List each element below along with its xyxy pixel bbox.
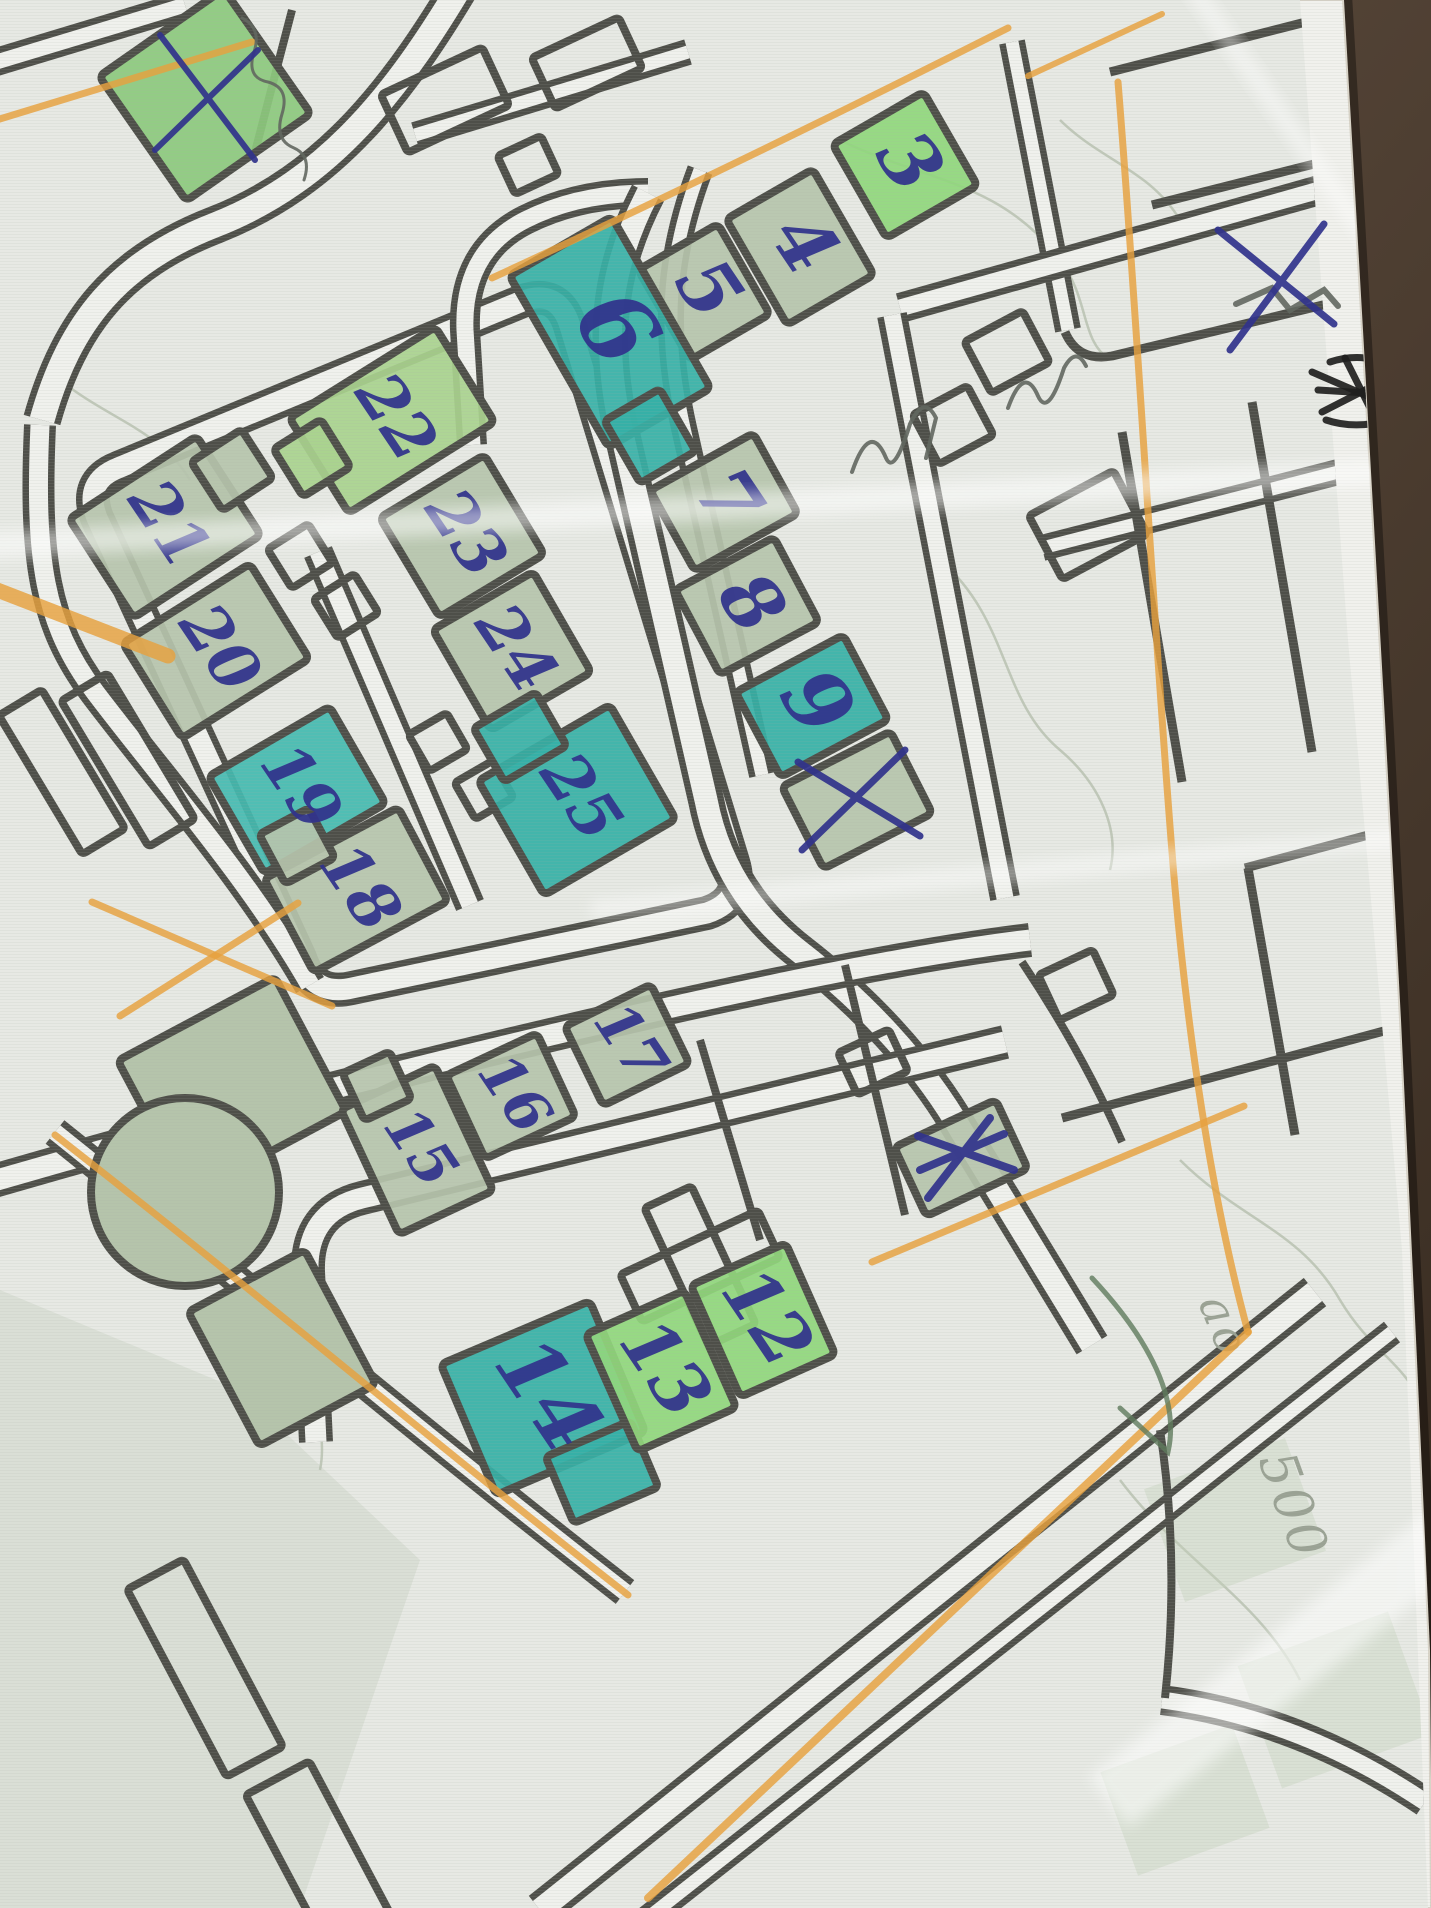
map-photo-canvas: ao50034567892122232420192518171615141312 [0,0,1431,1908]
annotated-paper-map-photo: ao50034567892122232420192518171615141312 [0,0,1431,1908]
paper-content: ao50034567892122232420192518171615141312 [0,0,1431,1908]
